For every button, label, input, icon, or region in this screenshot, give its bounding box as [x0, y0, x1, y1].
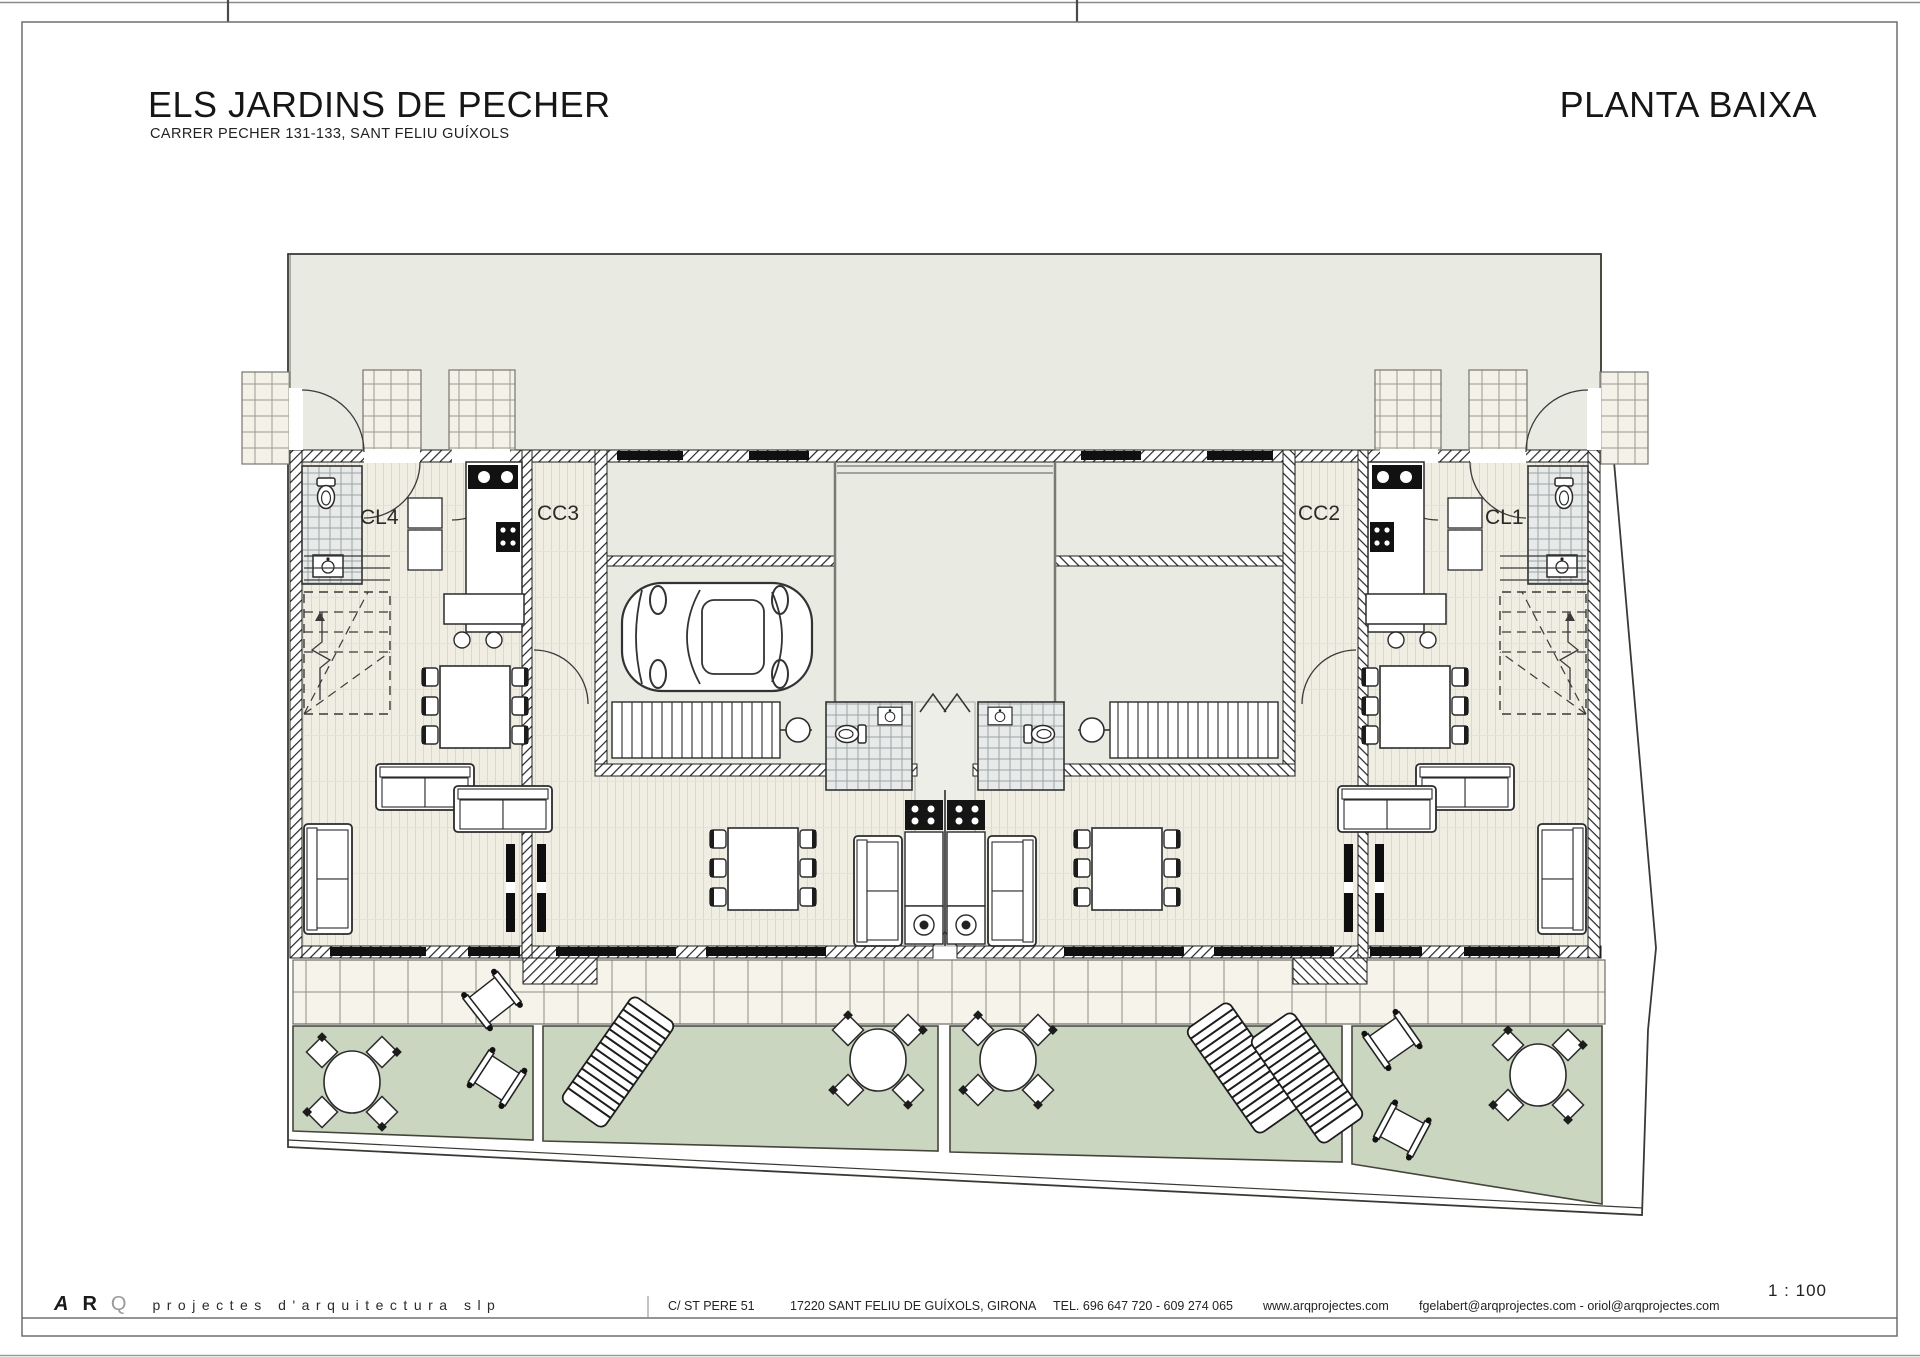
- footer-web: www.arqprojectes.com: [1263, 1299, 1389, 1313]
- footer-city: 17220 SANT FELIU DE GUÍXOLS, GIRONA: [790, 1299, 1036, 1313]
- unit-label-cc2: CC2: [1298, 502, 1340, 525]
- project-address: CARRER PECHER 131-133, SANT FELIU GUÍXOL…: [150, 126, 509, 142]
- logo-letter-a: A: [54, 1293, 68, 1315]
- unit-label-cl4: CL4: [360, 506, 399, 529]
- unit-label-cc3: CC3: [537, 502, 579, 525]
- floor-plan-drawing: CL4 CC3 CC2 CL1: [0, 0, 1920, 1357]
- architect-logo: ARQprojectes d'arquitectura slp: [54, 1293, 501, 1316]
- logo-letter-r: R: [82, 1293, 96, 1315]
- car-icon: [622, 583, 812, 691]
- footer-address: C/ ST PERE 51: [668, 1299, 755, 1313]
- logo-letter-q: Q: [111, 1293, 127, 1315]
- plan-name: PLANTA BAIXA: [1560, 84, 1817, 126]
- unit-label-cl1: CL1: [1485, 506, 1524, 529]
- footer-emails: fgelabert@arqprojectes.com - oriol@arqpr…: [1419, 1299, 1720, 1313]
- project-title: ELS JARDINS DE PECHER: [148, 84, 611, 126]
- logo-words: projectes d'arquitectura slp: [152, 1297, 501, 1313]
- scale-label: 1 : 100: [1768, 1281, 1827, 1301]
- footer-phone: TEL. 696 647 720 - 609 274 065: [1053, 1299, 1233, 1313]
